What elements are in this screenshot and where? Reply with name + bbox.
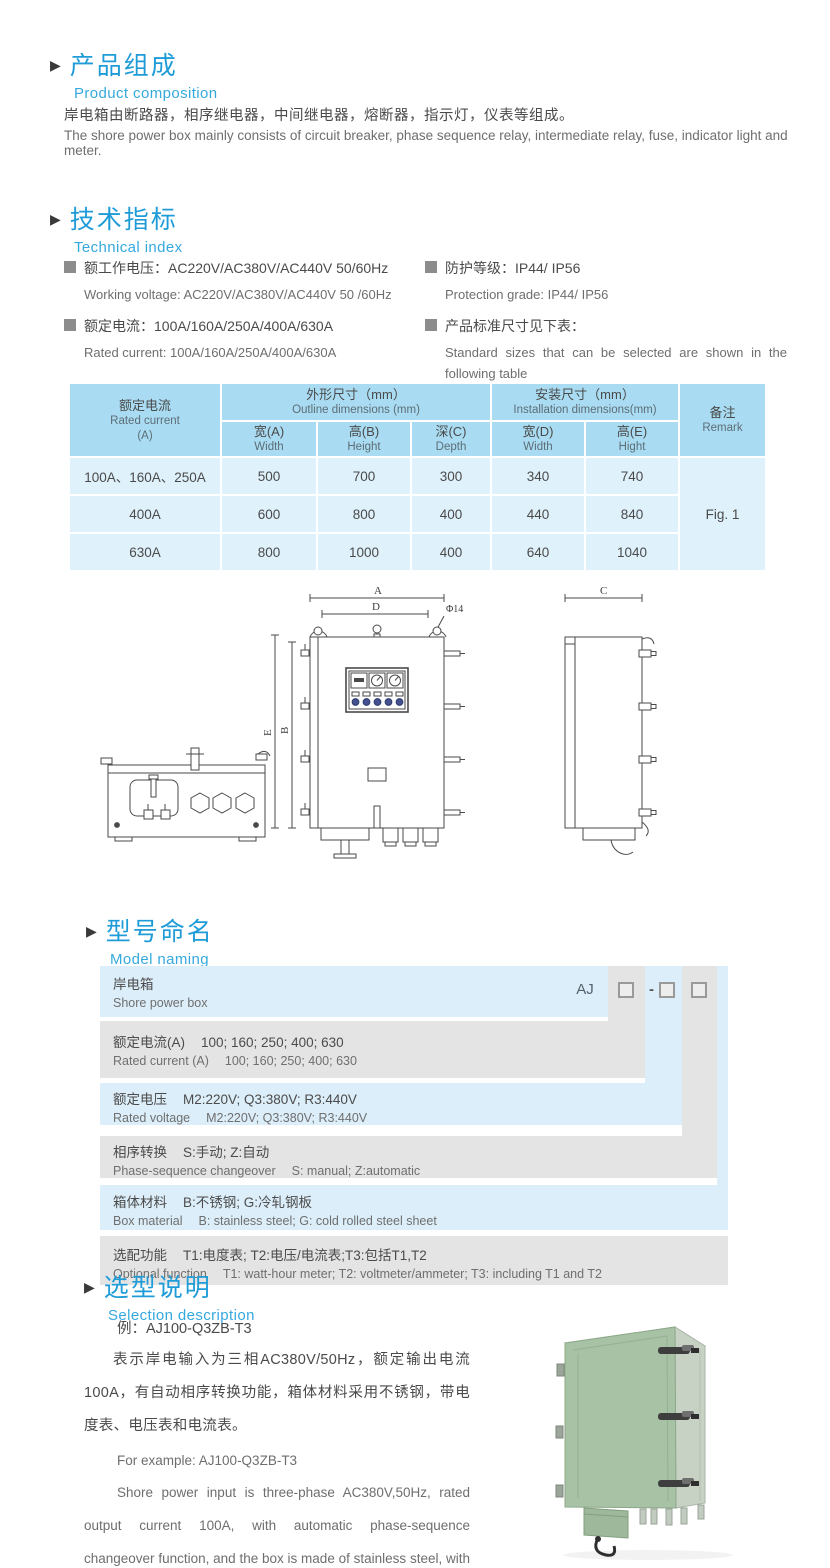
section-title-cn: 技术指标 <box>70 200 178 236</box>
cell-value: 1000 <box>317 533 411 571</box>
cell-value: 740 <box>585 457 679 495</box>
naming-label-en: Rated current (A) <box>113 1054 209 1068</box>
col-group-installation-dimensions: 安装尺寸（mm） Installation dimensions(mm) <box>491 383 679 421</box>
section-title-en: Product composition <box>74 85 218 102</box>
naming-desc-cn: B:不锈钢; G:冷轧钢板 <box>183 1195 312 1210</box>
bullet-square-icon <box>425 319 437 331</box>
header-en: Height <box>318 440 410 455</box>
table-row: 400A 600 800 400 440 840 <box>69 495 766 533</box>
spec-item: 额工作电压：AC220V/AC380V/AC440V 50/60Hz Worki… <box>64 258 426 305</box>
section-title-cn: 选型说明 <box>104 1268 212 1304</box>
model-code-box-1 <box>618 982 634 998</box>
col-header-depth-c: 深(C)Depth <box>411 421 491 457</box>
cell-value: 600 <box>221 495 317 533</box>
naming-label-cn: 额定电流(A) <box>113 1035 185 1050</box>
header-cn: 外形尺寸（mm） <box>222 386 490 403</box>
selection-example-cn: 例：AJ100-Q3ZB-T3 <box>84 1314 470 1344</box>
naming-desc-en: B: stainless steel; G: cold rolled steel… <box>198 1214 436 1228</box>
spec-column-left: 额工作电压：AC220V/AC380V/AC440V 50/60Hz Worki… <box>64 258 426 374</box>
header-en: Width <box>492 440 584 455</box>
dim-label-C: C <box>600 585 607 597</box>
header-en: Remark <box>680 421 765 436</box>
technical-drawing: A D Φ14 E B C <box>88 582 708 892</box>
cell-value: 700 <box>317 457 411 495</box>
header-cn: 宽(D) <box>492 423 584 440</box>
model-naming-diagram: 岸电箱 Shore power box 额定电流(A)100; 160; 250… <box>100 966 730 1286</box>
section-title-cn: 产品组成 <box>70 46 178 82</box>
model-code-prefix: AJ <box>568 981 602 998</box>
col-header-width-d: 宽(D)Width <box>491 421 585 457</box>
cell-value: 300 <box>411 457 491 495</box>
header-cn: 宽(A) <box>222 423 316 440</box>
product-composition-text-en: The shore power box mainly consists of c… <box>64 128 804 158</box>
bullet-square-icon <box>425 261 437 273</box>
drawing-bottom-view <box>101 748 270 841</box>
cell-value: 500 <box>221 457 317 495</box>
dim-label-dia14: Φ14 <box>446 604 463 615</box>
section-title-en: Technical index <box>74 239 183 256</box>
spec-item: 额定电流：100A/160A/250A/400A/630A Rated curr… <box>64 316 426 363</box>
col-header-height-e: 高(E)Hight <box>585 421 679 457</box>
section-model-naming-header: ▶型号命名 Model naming <box>86 912 214 968</box>
naming-row-rated-current: 额定电流(A)100; 160; 250; 400; 630 Rated cur… <box>100 1021 645 1078</box>
naming-label-cn: 相序转换 <box>113 1145 167 1160</box>
header-unit: (A) <box>70 429 220 444</box>
cell-rated-current: 400A <box>69 495 221 533</box>
naming-desc-cn: M2:220V; Q3:380V; R3:440V <box>183 1092 357 1107</box>
section-arrow-icon: ▶ <box>50 57 61 74</box>
section-title-cn: 型号命名 <box>106 912 214 948</box>
naming-desc-en: S: manual; Z:automatic <box>292 1164 421 1178</box>
selection-text-block: 例：AJ100-Q3ZB-T3 表示岸电输入为三相AC380V/50Hz，额定输… <box>84 1314 470 1568</box>
naming-label-cn: 额定电压 <box>113 1092 167 1107</box>
left-bolts <box>301 644 309 815</box>
header-en: Installation dimensions(mm) <box>492 403 678 418</box>
header-en: Rated current <box>70 414 220 429</box>
spec-text-en: Working voltage: AC220V/AC380V/AC440V 50… <box>84 284 426 305</box>
spec-text-en: Protection grade: IP44/ IP56 <box>445 284 787 305</box>
section-arrow-icon: ▶ <box>84 1279 95 1296</box>
header-en: Depth <box>412 440 490 455</box>
naming-label-en: Shore power box <box>113 996 208 1010</box>
cell-value: 840 <box>585 495 679 533</box>
table-row: 100A、160A、250A 500 700 300 340 740 Fig. … <box>69 457 766 495</box>
naming-desc-cn: S:手动; Z:自动 <box>183 1145 269 1160</box>
naming-label-cn: 箱体材料 <box>113 1195 167 1210</box>
product-composition-text-cn: 岸电箱由断路器，相序继电器，中间继电器，熔断器，指示灯，仪表等组成。 <box>64 104 784 125</box>
header-cn: 备注 <box>680 404 765 421</box>
selection-example-en: For example: AJ100-Q3ZB-T3 <box>84 1445 470 1476</box>
naming-label-en: Rated voltage <box>113 1111 190 1125</box>
right-latches <box>444 651 465 815</box>
model-code-separator: - <box>649 981 654 998</box>
table-row: 630A 800 1000 400 640 1040 <box>69 533 766 571</box>
section-arrow-icon: ▶ <box>50 211 61 228</box>
spec-text-cn: 额定电流：100A/160A/250A/400A/630A <box>84 316 333 336</box>
header-cn: 额定电流 <box>70 397 220 414</box>
cell-value: 440 <box>491 495 585 533</box>
header-cn: 高(B) <box>318 423 410 440</box>
col-header-height-b: 高(B)Height <box>317 421 411 457</box>
spec-text-cn: 产品标准尺寸见下表： <box>445 316 585 336</box>
naming-label-cn: 岸电箱 <box>113 977 154 992</box>
size-table: 额定电流 Rated current (A) 外形尺寸（mm） Outline … <box>68 382 767 572</box>
model-code-box-2 <box>659 982 675 998</box>
dim-label-A: A <box>374 585 382 597</box>
naming-row-shore-power-box: 岸电箱 Shore power box <box>100 966 608 1017</box>
header-cn: 安装尺寸（mm） <box>492 386 678 403</box>
header-cn: 高(E) <box>586 423 678 440</box>
col-header-width-a: 宽(A)Width <box>221 421 317 457</box>
cell-value: 340 <box>491 457 585 495</box>
cell-value: 400 <box>411 533 491 571</box>
spec-text-cn: 额工作电压：AC220V/AC380V/AC440V 50/60Hz <box>84 258 388 278</box>
selection-body-cn: 表示岸电输入为三相AC380V/50Hz，额定输出电流100A，有自动相序转换功… <box>84 1344 470 1443</box>
cell-value: 400 <box>411 495 491 533</box>
header-en: Hight <box>586 440 678 455</box>
header-en: Width <box>222 440 316 455</box>
col-header-remark: 备注 Remark <box>679 383 766 457</box>
drawing-front-view <box>271 594 465 858</box>
cell-value: 640 <box>491 533 585 571</box>
naming-row-box-material: 箱体材料B:不锈钢; G:冷轧钢板 Box materialB: stainle… <box>100 1185 728 1230</box>
naming-label-en: Phase-sequence changeover <box>113 1164 276 1178</box>
dim-label-E: E <box>262 729 274 736</box>
section-product-composition-header: ▶产品组成 Product composition <box>50 46 218 102</box>
col-group-outline-dimensions: 外形尺寸（mm） Outline dimensions (mm) <box>221 383 491 421</box>
cell-value: 1040 <box>585 533 679 571</box>
spec-text-en: Rated current: 100A/160A/250A/400A/630A <box>84 342 426 363</box>
section-arrow-icon: ▶ <box>86 923 97 940</box>
section-technical-index-header: ▶技术指标 Technical index <box>50 200 183 256</box>
naming-row-rated-voltage: 额定电压M2:220V; Q3:380V; R3:440V Rated volt… <box>100 1083 682 1125</box>
cell-remark: Fig. 1 <box>679 457 766 571</box>
shore-power-box-photo <box>556 1327 733 1560</box>
cell-rated-current: 100A、160A、250A <box>69 457 221 495</box>
spec-item: 防护等级：IP44/ IP56 Protection grade: IP44/ … <box>425 258 787 305</box>
selection-body-en: Shore power input is three-phase AC380V,… <box>84 1476 470 1568</box>
naming-row-phase-sequence: 相序转换S:手动; Z:自动 Phase-sequence changeover… <box>100 1136 717 1178</box>
product-photo <box>528 1292 813 1564</box>
cell-value: 800 <box>221 533 317 571</box>
bullet-square-icon <box>64 261 76 273</box>
dim-label-B: B <box>279 727 291 734</box>
header-en: Outline dimensions (mm) <box>222 403 490 418</box>
naming-desc-en: 100; 160; 250; 400; 630 <box>225 1054 357 1068</box>
spec-text-en: Standard sizes that can be selected are … <box>445 342 787 384</box>
spec-column-right: 防护等级：IP44/ IP56 Protection grade: IP44/ … <box>425 258 787 395</box>
col-header-rated-current: 额定电流 Rated current (A) <box>69 383 221 457</box>
drawing-side-view <box>565 594 656 854</box>
naming-desc-cn: 100; 160; 250; 400; 630 <box>201 1035 344 1050</box>
cell-value: 800 <box>317 495 411 533</box>
naming-label-cn: 选配功能 <box>113 1248 167 1263</box>
spec-text-cn: 防护等级：IP44/ IP56 <box>445 258 580 278</box>
naming-desc-en: T1: watt-hour meter; T2: voltmeter/ammet… <box>223 1267 602 1281</box>
naming-desc-en: M2:220V; Q3:380V; R3:440V <box>206 1111 367 1125</box>
cell-rated-current: 630A <box>69 533 221 571</box>
catalog-page: ▶产品组成 Product composition 岸电箱由断路器，相序继电器，… <box>0 0 830 1568</box>
naming-desc-cn: T1:电度表; T2:电压/电流表;T3:包括T1,T2 <box>183 1248 427 1263</box>
model-code-box-3 <box>691 982 707 998</box>
bullet-square-icon <box>64 319 76 331</box>
naming-label-en: Box material <box>113 1214 182 1228</box>
spec-item: 产品标准尺寸见下表： Standard sizes that can be se… <box>425 316 787 384</box>
dim-label-D: D <box>372 601 380 613</box>
header-cn: 深(C) <box>412 423 490 440</box>
